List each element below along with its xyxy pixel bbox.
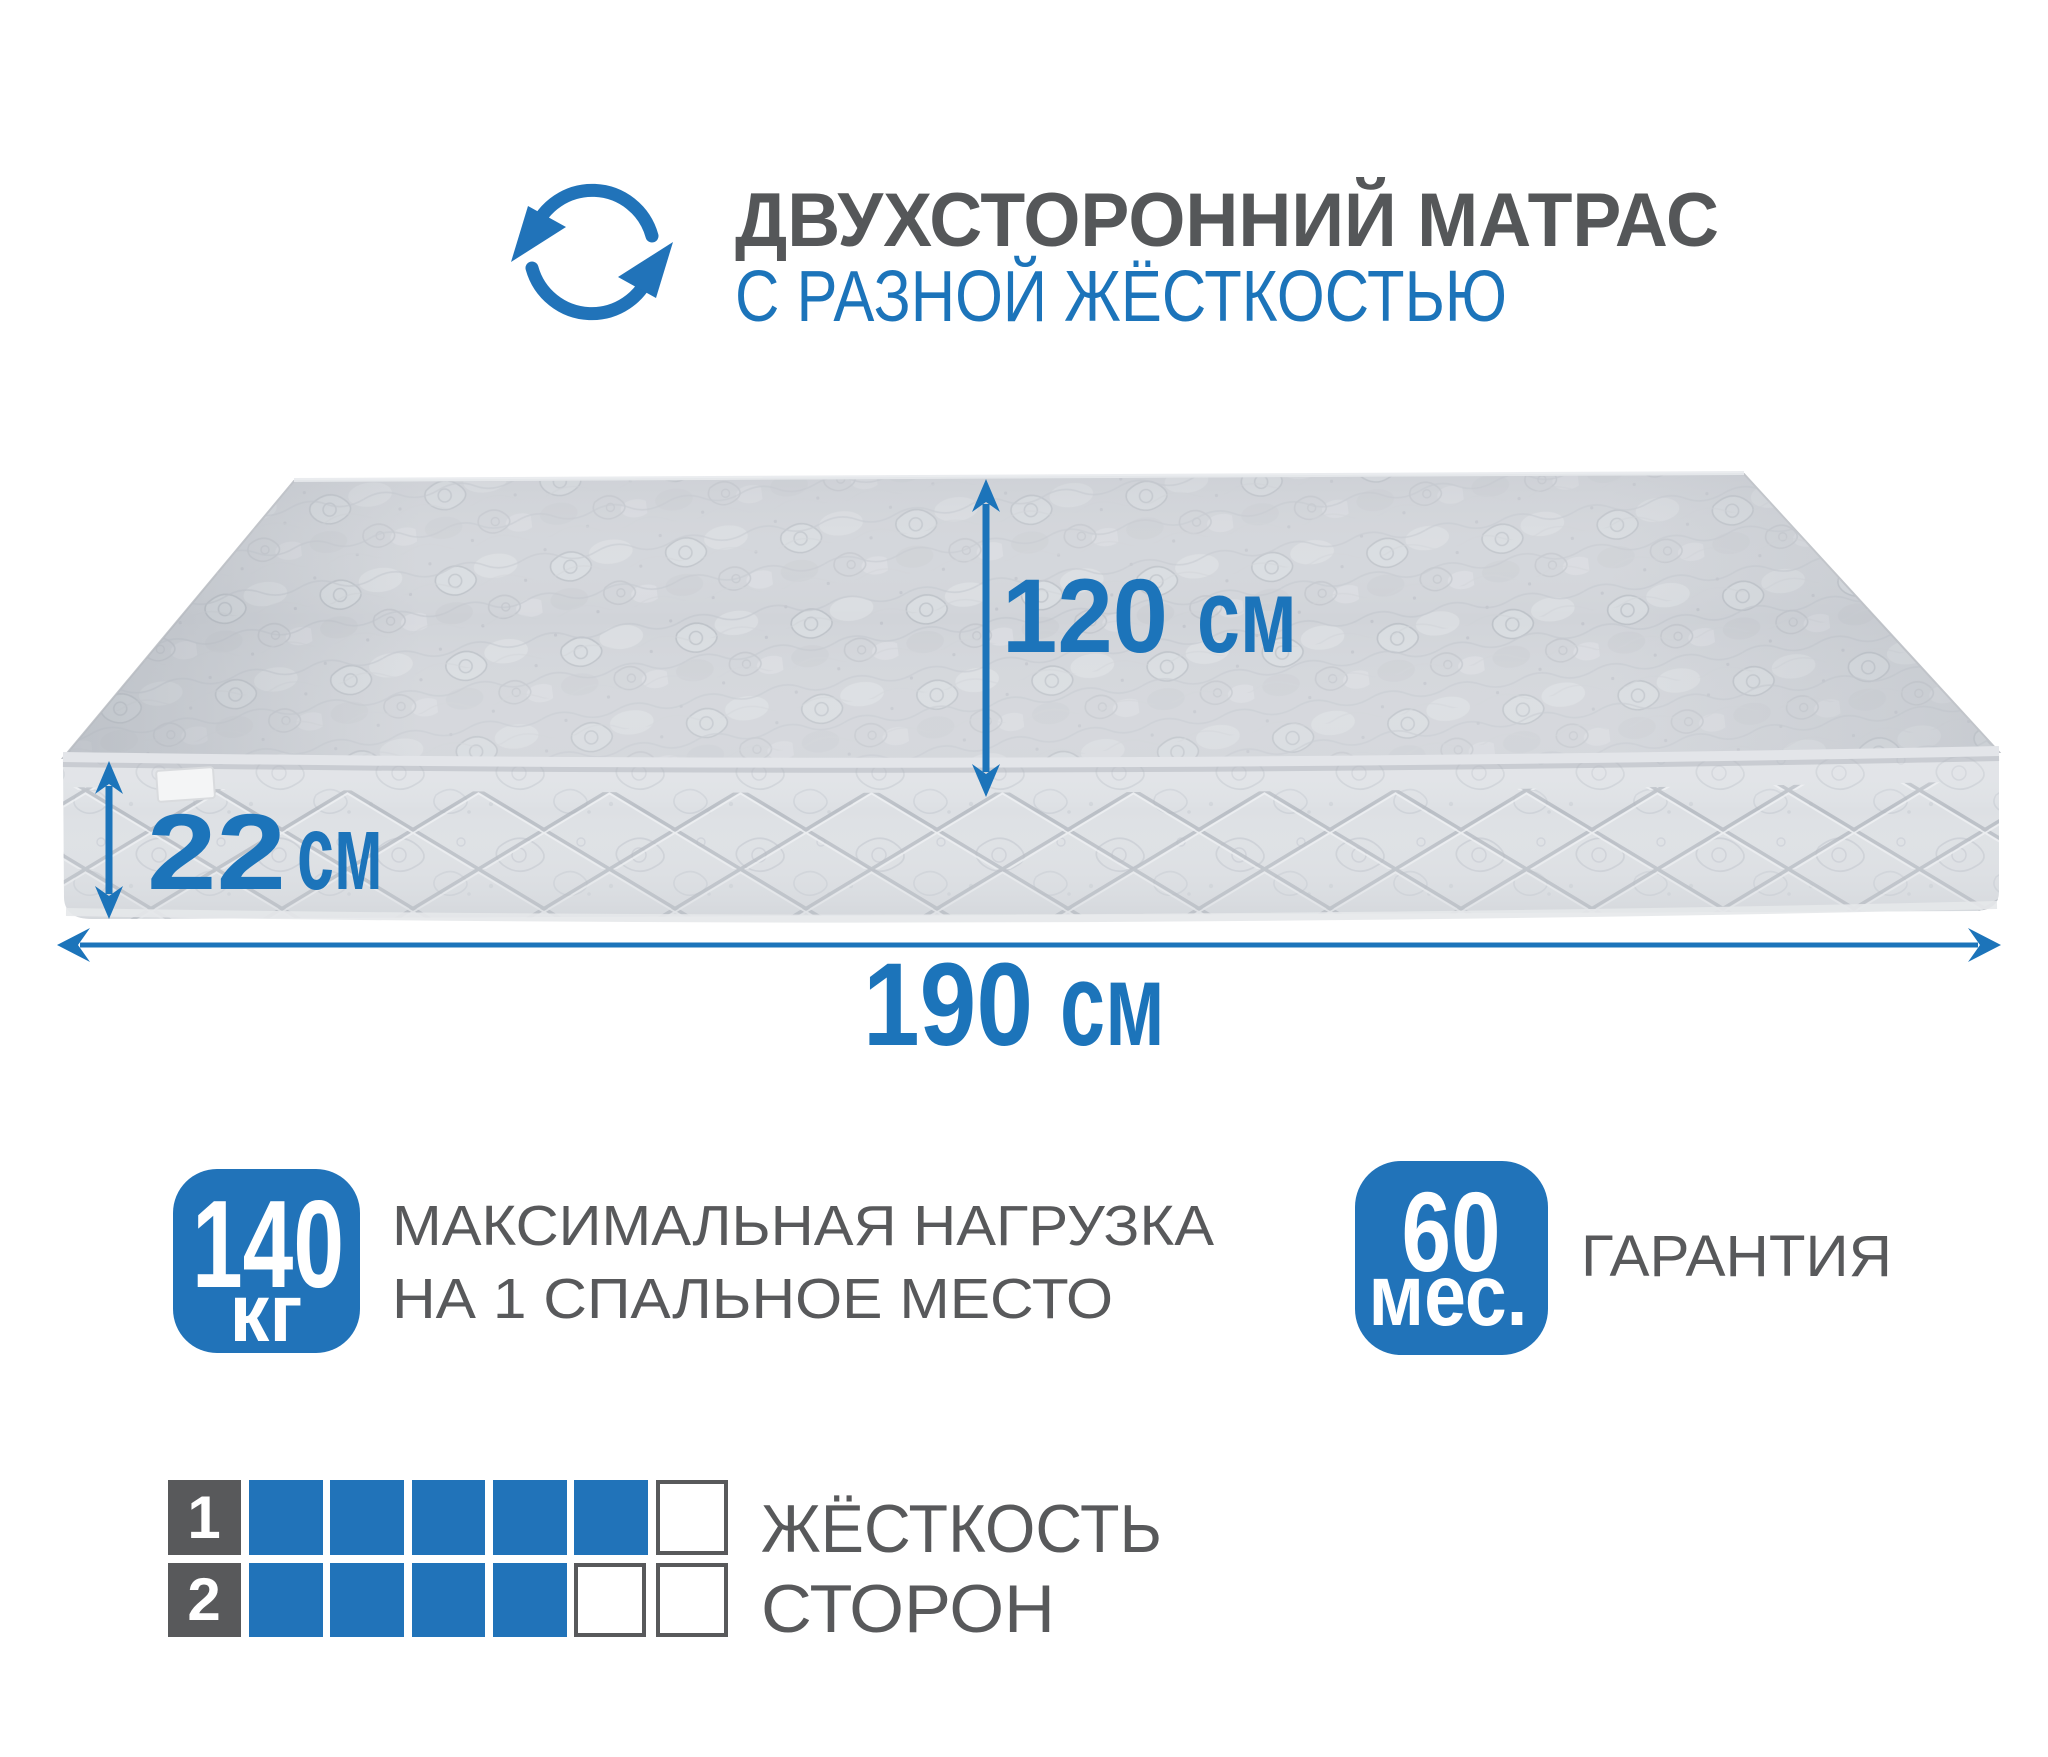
svg-text:2: 2 <box>187 1566 220 1633</box>
svg-text:СТОРОН: СТОРОН <box>761 1571 1055 1647</box>
svg-text:1: 1 <box>187 1484 220 1551</box>
svg-text:120: 120 <box>1002 558 1168 675</box>
svg-text:22: 22 <box>147 791 286 912</box>
svg-text:мес.: мес. <box>1369 1247 1528 1344</box>
svg-text:НА 1 СПАЛЬНОЕ МЕСТО: НА 1 СПАЛЬНОЕ МЕСТО <box>392 1267 1113 1331</box>
svg-text:МАКСИМАЛЬНАЯ НАГРУЗКА: МАКСИМАЛЬНАЯ НАГРУЗКА <box>392 1194 1214 1258</box>
svg-text:ГАРАНТИЯ: ГАРАНТИЯ <box>1581 1224 1892 1289</box>
svg-text:см: см <box>1197 558 1297 675</box>
svg-text:см: см <box>297 791 383 912</box>
svg-text:ДВУХСТОРОННИЙ МАТРАС: ДВУХСТОРОННИЙ МАТРАС <box>735 177 1719 263</box>
svg-text:190: 190 <box>863 939 1033 1071</box>
svg-text:С РАЗНОЙ ЖЁСТКОСТЬЮ: С РАЗНОЙ ЖЁСТКОСТЬЮ <box>735 255 1507 337</box>
svg-text:кг: кг <box>230 1268 303 1359</box>
svg-text:ЖЁСТКОСТЬ: ЖЁСТКОСТЬ <box>761 1491 1162 1567</box>
svg-text:см: см <box>1060 939 1165 1071</box>
